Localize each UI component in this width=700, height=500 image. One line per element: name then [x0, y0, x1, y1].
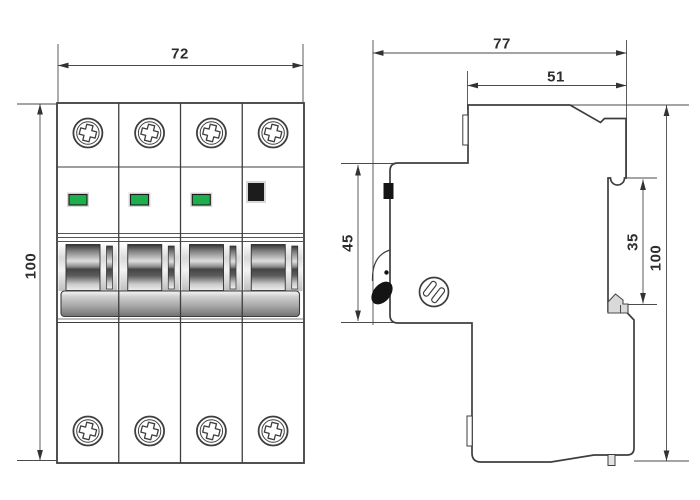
- dim-label-front-height: 100: [24, 253, 39, 280]
- technical-drawing-canvas: 72 100 77 51 45 35 100: [0, 0, 700, 500]
- top-clip-tab: [463, 115, 468, 145]
- terminal-screw-icon: [135, 119, 164, 148]
- dim-label-side-front-height: 45: [341, 234, 356, 252]
- indicator-window-green: [192, 195, 210, 206]
- toggle-knob: [190, 245, 224, 291]
- bottom-clip-tab: [467, 416, 472, 446]
- din-release-tab: [608, 455, 615, 466]
- toggle-knob: [66, 245, 100, 291]
- terminal-screw-icon: [135, 417, 164, 446]
- terminal-screw-icon: [73, 119, 102, 148]
- front-view: [17, 44, 304, 463]
- terminal-screw-icon: [259, 119, 288, 148]
- side-marking-window: [384, 183, 394, 199]
- dim-label-front-width: 72: [171, 47, 189, 62]
- terminal-screw-icon: [197, 119, 226, 148]
- terminal-screw-icon: [73, 417, 102, 446]
- din-rail-clip: [608, 294, 628, 313]
- indicator-window-green: [131, 195, 149, 206]
- toggle-knob: [251, 245, 285, 291]
- side-view: [341, 40, 689, 466]
- dim-label-side-depth: 77: [493, 37, 511, 52]
- terminal-screw-icon: [259, 417, 288, 446]
- indicator-window-green: [69, 195, 87, 206]
- toggle-knob: [128, 245, 162, 291]
- terminal-screw-icon: [197, 417, 226, 446]
- dim-label-side-total-height: 100: [649, 245, 664, 272]
- adjustment-screw-icon: [420, 278, 449, 307]
- indicator-window-black: [248, 183, 264, 201]
- dim-label-side-upper-depth: 51: [547, 70, 565, 85]
- dim-label-side-recess-height: 35: [626, 233, 641, 251]
